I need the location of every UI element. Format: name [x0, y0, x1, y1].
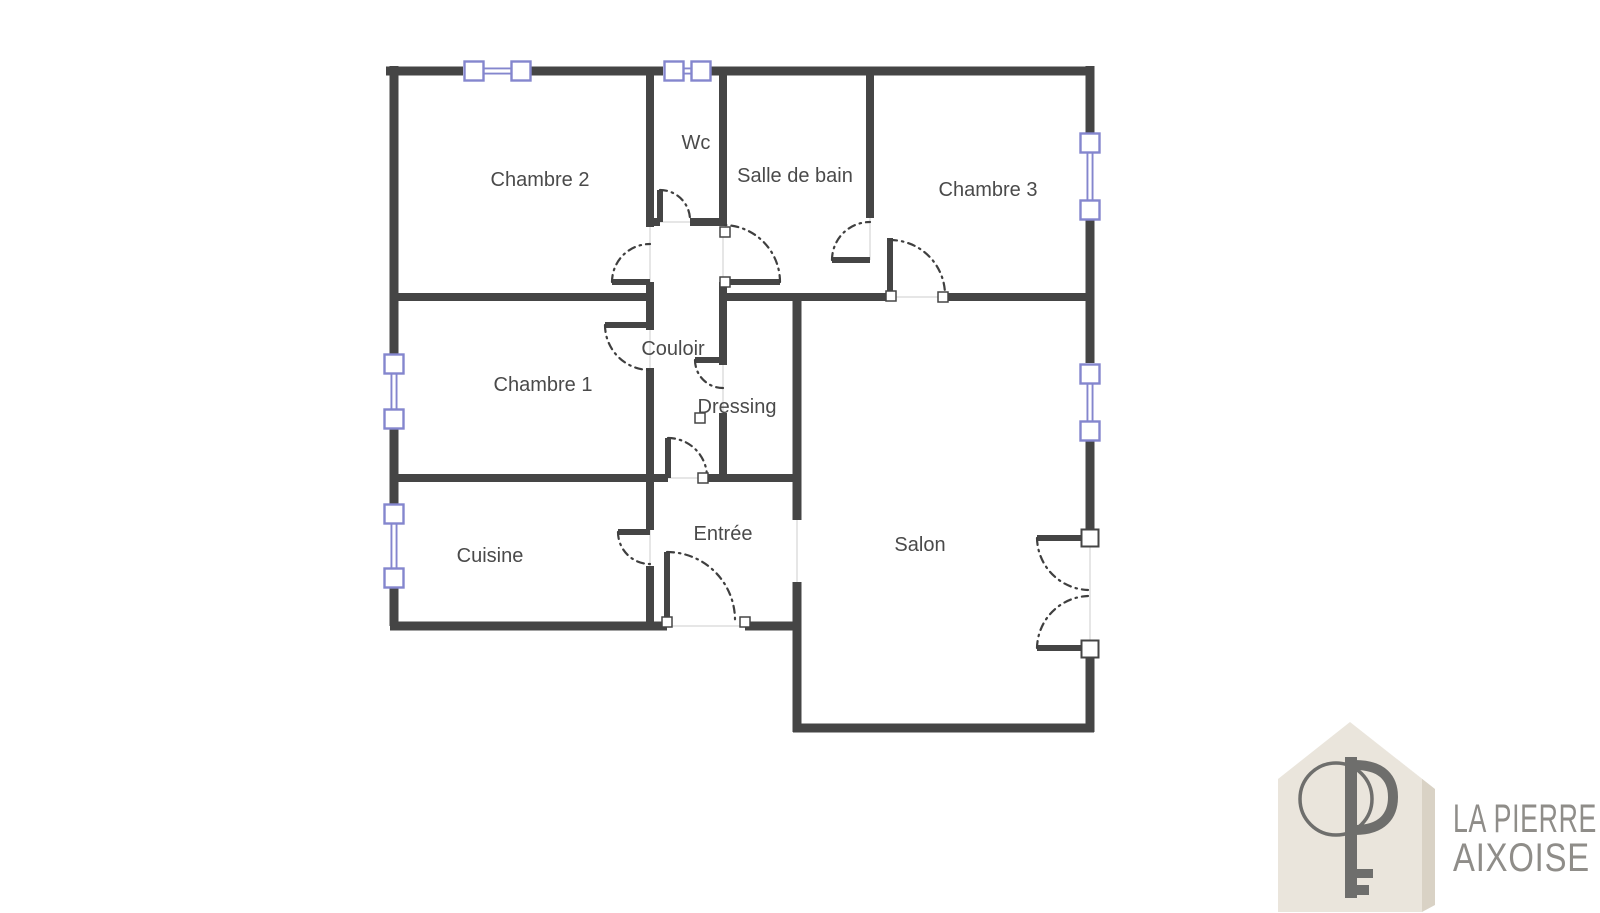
windows — [385, 62, 1100, 588]
room-label-entree: Entrée — [694, 523, 753, 545]
door-hinge-block — [740, 617, 750, 627]
french-door-jamb — [1082, 530, 1099, 547]
floor-plan-drawing: Chambre 2 Wc Salle de bain Chambre 3 Cha… — [0, 0, 1600, 913]
room-label-couloir: Couloir — [641, 338, 705, 360]
window-frame-box — [512, 62, 531, 81]
room-label-salle-de-bain: Salle de bain — [737, 165, 853, 187]
window-glazing-lines — [394, 71, 1090, 569]
room-labels: Chambre 2 Wc Salle de bain Chambre 3 Cha… — [457, 132, 1038, 567]
door-leaves-core — [605, 190, 1084, 648]
room-label-chambre-3: Chambre 3 — [939, 179, 1038, 201]
brand-line-1: LA PIERRE — [1453, 797, 1597, 841]
door-hinge-block — [938, 292, 948, 302]
door-hinge-block — [720, 277, 730, 287]
window-frame-box — [385, 505, 404, 524]
agency-logo: LA PIERRE AIXOISE — [1278, 722, 1597, 912]
door-hinge-block — [886, 291, 896, 301]
door-hinge-block — [698, 473, 708, 483]
french-door-jamb — [1082, 641, 1099, 658]
window-frame-box — [385, 410, 404, 429]
window-frame-box — [692, 62, 711, 81]
room-label-cuisine: Cuisine — [457, 545, 524, 567]
room-label-dressing: Dressing — [698, 396, 777, 418]
window-frame-box — [385, 569, 404, 588]
window-frame-box — [1081, 365, 1100, 384]
room-label-chambre-1: Chambre 1 — [494, 374, 593, 396]
floorplan-page: Chambre 2 Wc Salle de bain Chambre 3 Cha… — [0, 0, 1600, 913]
key-tooth — [1357, 869, 1373, 878]
door-jambs — [662, 227, 1099, 658]
window-frame-box — [665, 62, 684, 81]
door-threshold-lines — [650, 218, 1090, 640]
door-hinge-block — [720, 227, 730, 237]
window-frame-box — [465, 62, 484, 81]
window-frame-box — [1081, 201, 1100, 220]
window-frame-box — [1081, 134, 1100, 153]
window-frame-box — [385, 355, 404, 374]
brand-line-2: AIXOISE — [1453, 836, 1590, 880]
window-frame-box — [1081, 422, 1100, 441]
key-tooth — [1357, 885, 1369, 895]
room-label-wc: Wc — [682, 132, 711, 154]
room-label-chambre-2: Chambre 2 — [491, 169, 590, 191]
window-glazing-core — [394, 71, 1090, 569]
room-label-salon: Salon — [894, 534, 945, 556]
door-hinge-block — [662, 617, 672, 627]
